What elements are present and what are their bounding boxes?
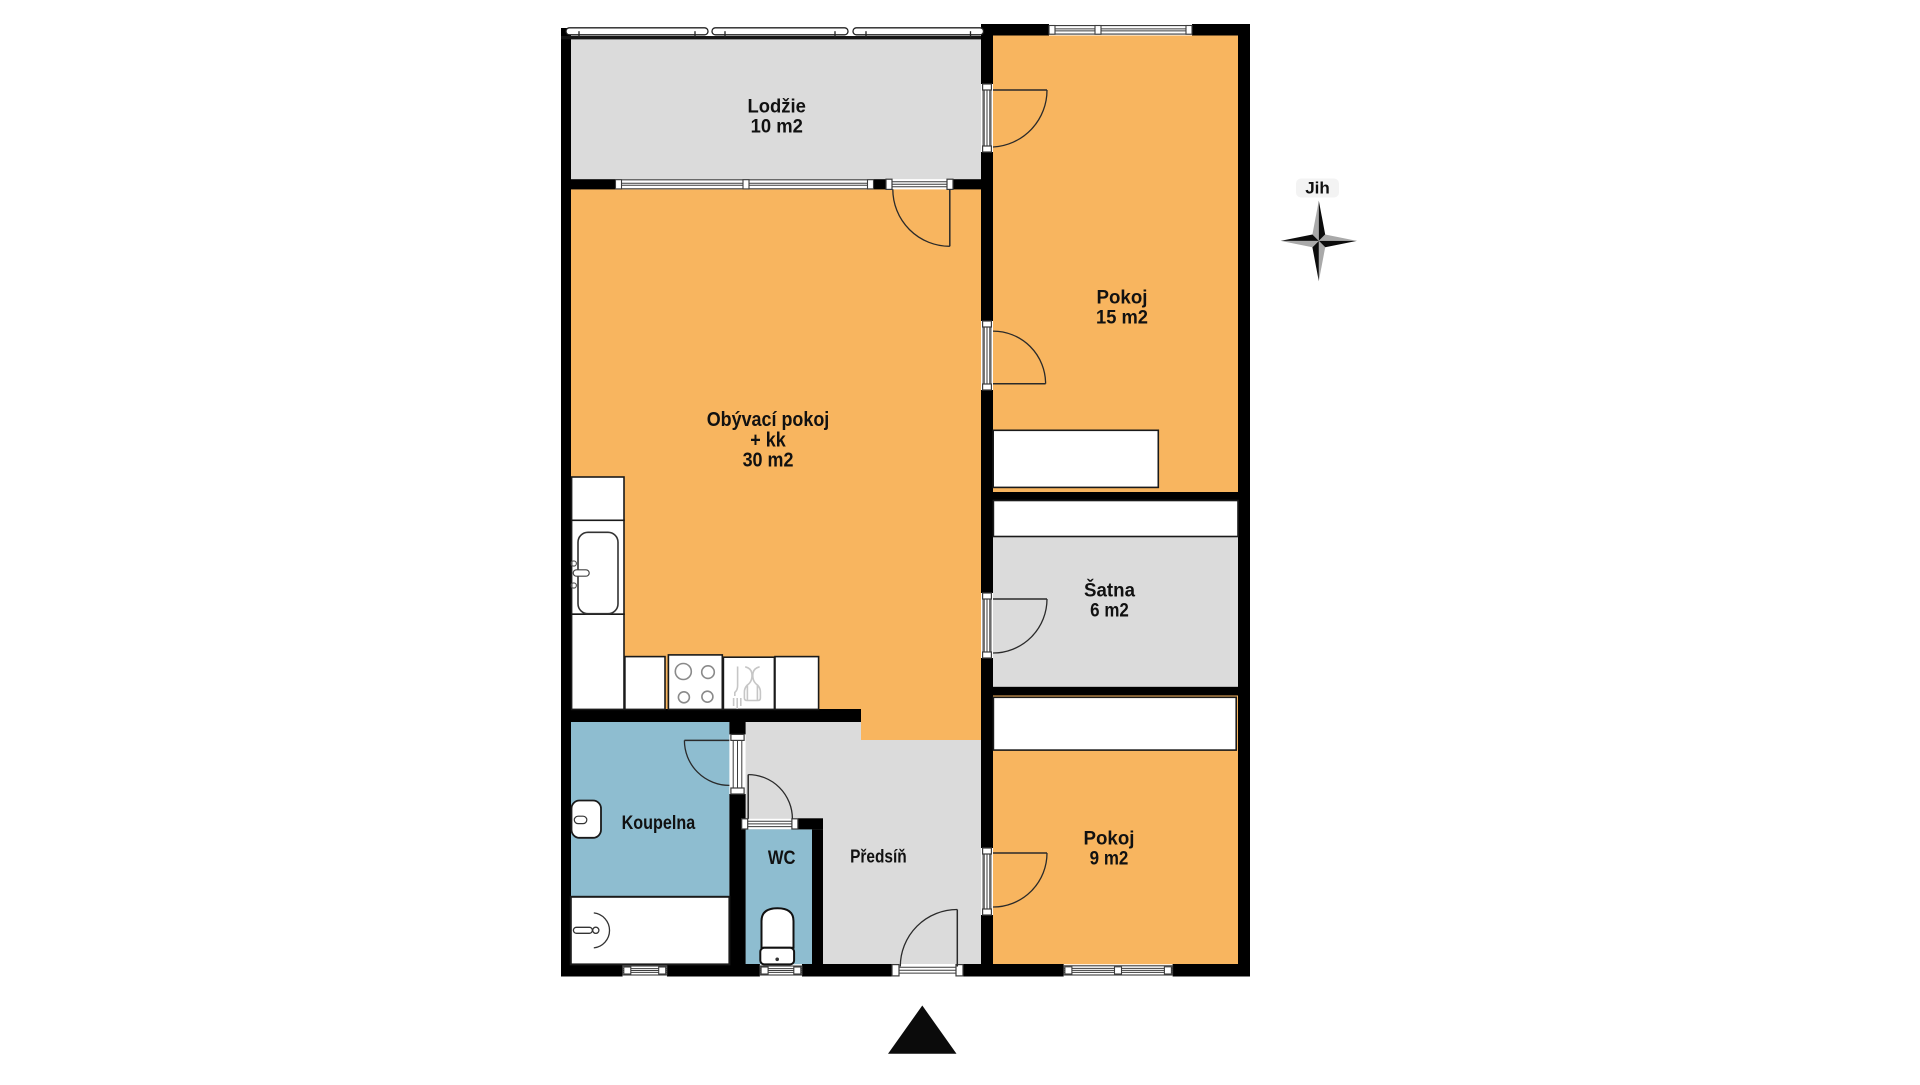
- svg-text:6 m2: 6 m2: [1090, 598, 1129, 620]
- svg-text:Pokoj: Pokoj: [1097, 287, 1148, 308]
- svg-text:+ kk: + kk: [750, 429, 786, 451]
- svg-text:Koupelna: Koupelna: [622, 812, 696, 834]
- svg-text:Lodžie: Lodžie: [748, 95, 806, 116]
- svg-text:15 m2: 15 m2: [1096, 307, 1148, 329]
- svg-text:Předsíň: Předsíň: [850, 846, 907, 867]
- svg-text:WC: WC: [768, 847, 796, 869]
- svg-text:Obývací pokoj: Obývací pokoj: [707, 409, 830, 431]
- svg-text:9 m2: 9 m2: [1090, 846, 1129, 868]
- svg-text:Jih: Jih: [1305, 179, 1330, 198]
- svg-text:10 m2: 10 m2: [751, 115, 803, 136]
- svg-text:30 m2: 30 m2: [743, 449, 794, 471]
